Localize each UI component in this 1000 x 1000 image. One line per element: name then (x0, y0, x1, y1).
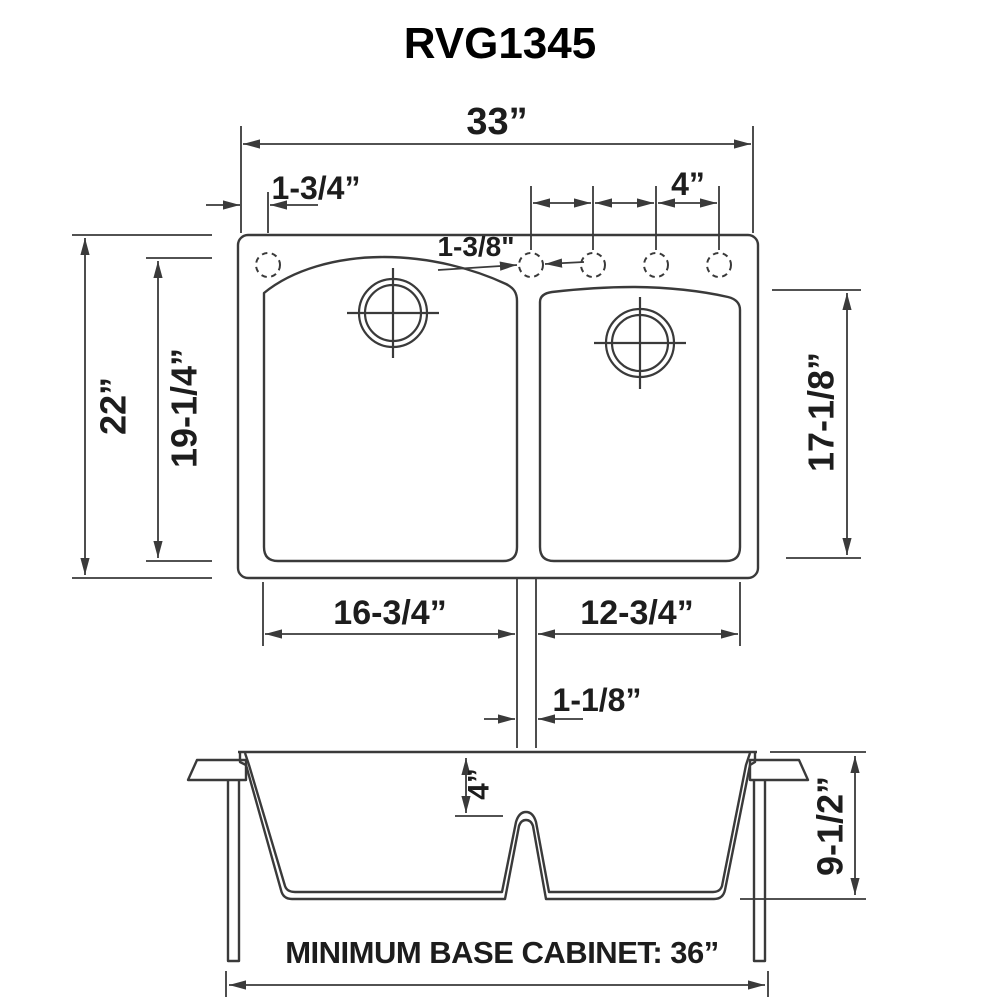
faucet-hole-3 (581, 253, 605, 277)
small-bowl-drain (594, 297, 686, 389)
dim-divider-drop: 4” (463, 768, 496, 800)
large-bowl-drain (347, 268, 439, 358)
base-cabinet-note: MINIMUM BASE CABINET: 36” (285, 935, 719, 970)
dim-overall-width: 33” (466, 101, 527, 143)
faucet-hole-5 (707, 253, 731, 277)
bowl-section-outer (240, 753, 755, 899)
dim-divider-width: 1-1/8” (553, 682, 642, 718)
large-bowl-outline (264, 257, 517, 561)
dim-small-bowl-width: 12-3/4” (580, 594, 693, 632)
spec-drawing: RVG1345 33” 1-3/4” 4” 1-3/8" 22” 19-1/4”… (0, 0, 1000, 1000)
sink-rim-outline (238, 235, 758, 578)
faucet-hole-1 (256, 253, 280, 277)
faucet-hole-4 (644, 253, 668, 277)
dim-large-bowl-width: 16-3/4” (333, 594, 446, 632)
cabinet-wall-left (228, 780, 239, 961)
faucet-hole-2 (519, 253, 543, 277)
top-view (238, 235, 758, 578)
bowl-section-inner (245, 753, 750, 892)
dim-first-hole-offset: 1-3/4” (272, 170, 361, 206)
dim-large-bowl-length: 19-1/4” (164, 348, 205, 468)
cabinet-wall-right (754, 780, 765, 961)
countertop-left (188, 760, 246, 780)
dim-hole-diameter: 1-3/8" (437, 231, 514, 262)
dim-small-bowl-length: 17-1/8” (801, 352, 842, 472)
sink-diagram-svg: RVG1345 33” 1-3/4” 4” 1-3/8" 22” 19-1/4”… (0, 0, 1000, 1000)
countertop-right (750, 760, 808, 780)
dim-bowl-depth: 9-1/2” (810, 776, 851, 876)
dim-overall-depth: 22” (93, 377, 134, 435)
dim-hole-spacing: 4” (671, 166, 705, 202)
page-title: RVG1345 (404, 19, 596, 68)
